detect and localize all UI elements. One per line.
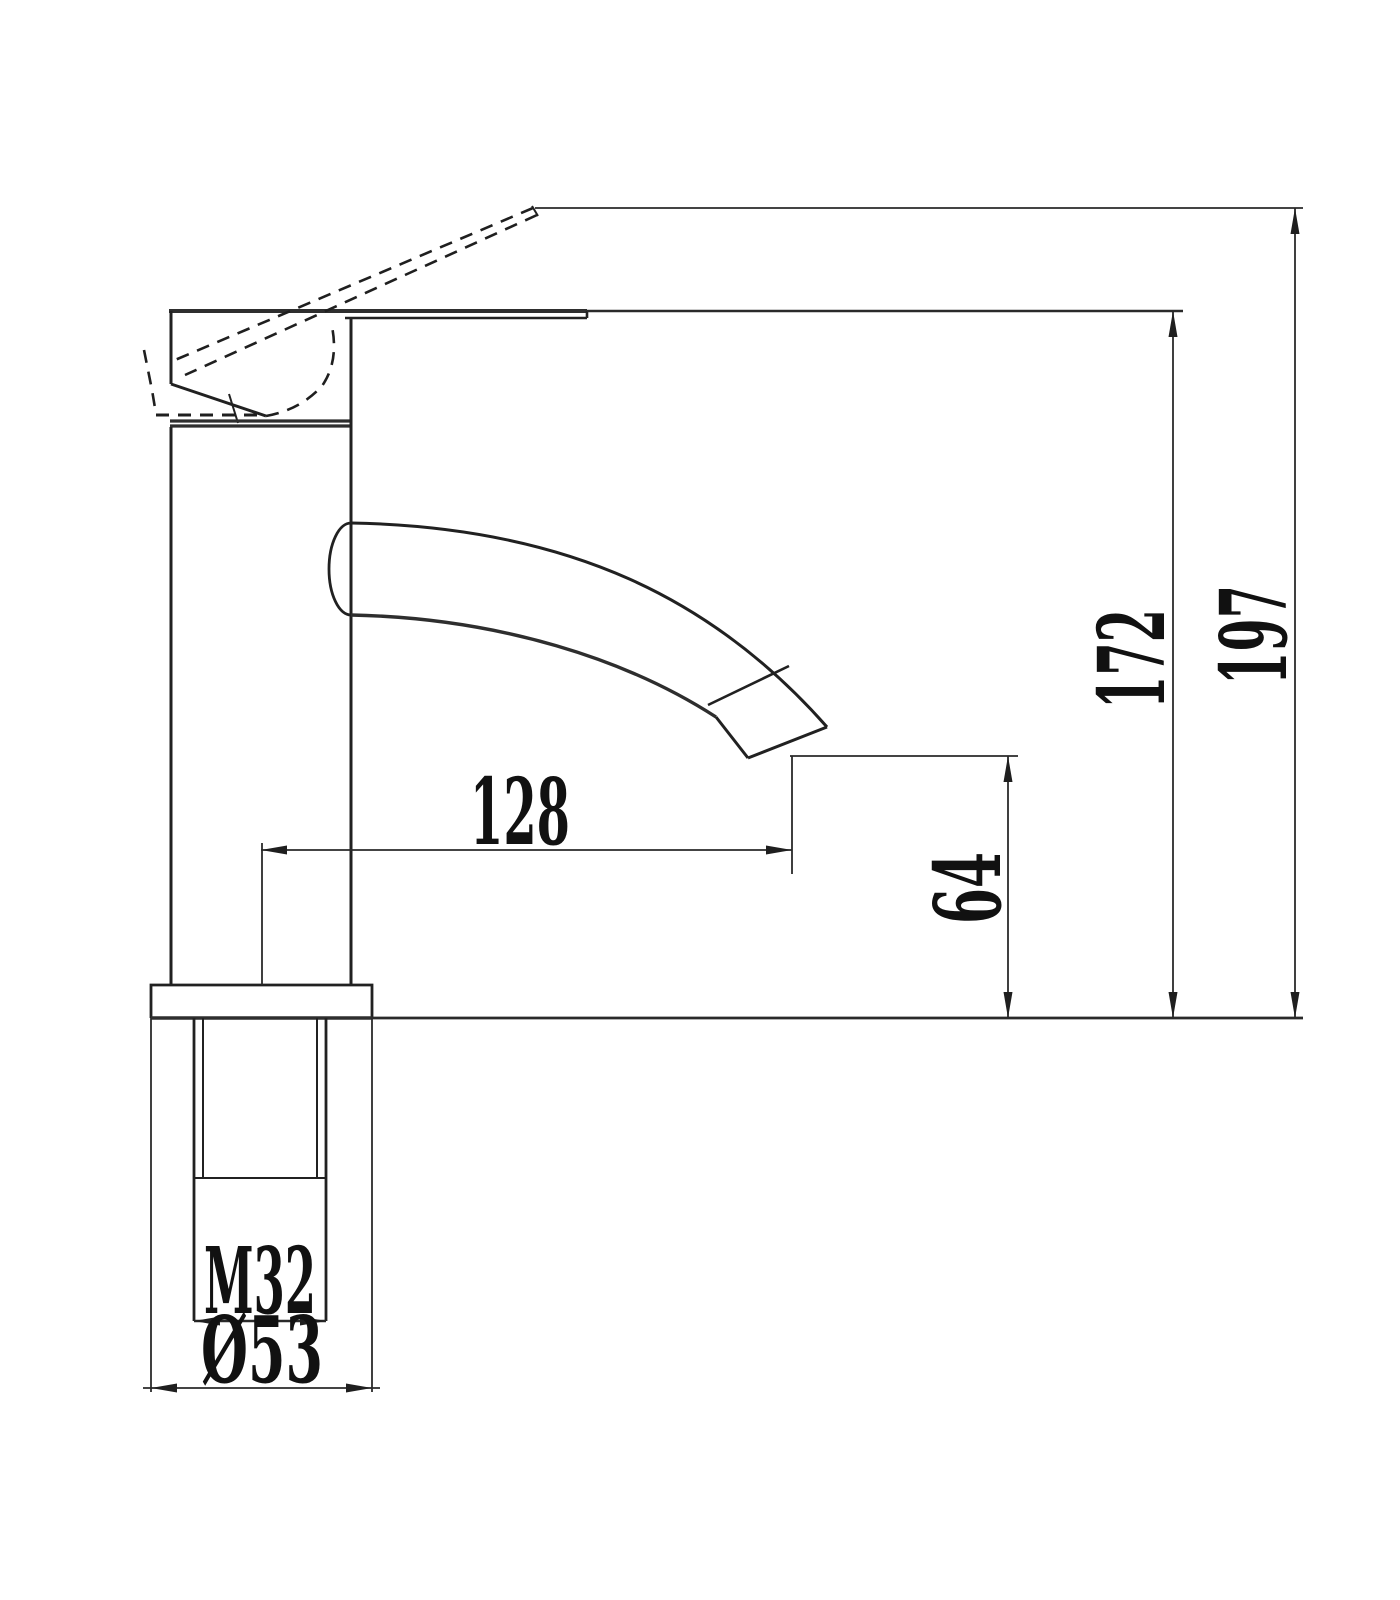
raised-cone-right-edge bbox=[266, 322, 334, 416]
dimension-label-base-diameter: Ø53 bbox=[201, 1296, 323, 1404]
raised-lever-top-edge bbox=[175, 208, 533, 360]
faucet-dimension-drawing: 128 172 197 64 M32 Ø53 bbox=[0, 0, 1400, 1600]
arrowhead-64-top bbox=[1004, 756, 1013, 782]
raised-cone-left-edge bbox=[144, 350, 156, 414]
arrowhead-d53-left bbox=[151, 1384, 177, 1393]
dimension-label-outlet-height: 64 bbox=[914, 852, 1022, 924]
technical-drawing-canvas: 128 172 197 64 M32 Ø53 bbox=[0, 0, 1400, 1600]
arrowhead-172-top bbox=[1169, 311, 1178, 337]
arrowhead-64-bottom bbox=[1004, 992, 1013, 1018]
dimension-label-spout-reach: 128 bbox=[470, 758, 570, 866]
spout-tip-bottom-edge bbox=[716, 717, 748, 758]
dimension-label-total-height: 197 bbox=[1200, 585, 1308, 685]
dimension-arrowheads bbox=[151, 208, 1300, 1393]
spout-tip-end-face bbox=[748, 727, 827, 758]
arrowhead-128-right bbox=[766, 846, 792, 855]
raised-lever-bottom-edge bbox=[185, 215, 537, 375]
spout-root-arc bbox=[329, 523, 351, 615]
handle-cone-bottom-diagonal bbox=[171, 384, 266, 416]
arrowhead-172-bottom bbox=[1169, 992, 1178, 1018]
base-flange-outline bbox=[151, 985, 372, 1018]
dimension-label-height-to-handle: 172 bbox=[1078, 609, 1186, 709]
arrowhead-d53-right bbox=[346, 1384, 372, 1393]
arrowhead-197-top bbox=[1291, 208, 1300, 234]
spout-aerator-cut-line bbox=[708, 666, 789, 705]
dimension-labels: 128 172 197 64 M32 Ø53 bbox=[201, 585, 1308, 1404]
dimension-system: 128 172 197 64 M32 Ø53 bbox=[143, 208, 1308, 1404]
handle-pivot-segment bbox=[229, 394, 238, 423]
arrowhead-128-left bbox=[261, 846, 287, 855]
spout-bottom-curve bbox=[351, 615, 716, 717]
arrowhead-197-bottom bbox=[1291, 992, 1300, 1018]
spout-top-curve bbox=[351, 523, 827, 727]
